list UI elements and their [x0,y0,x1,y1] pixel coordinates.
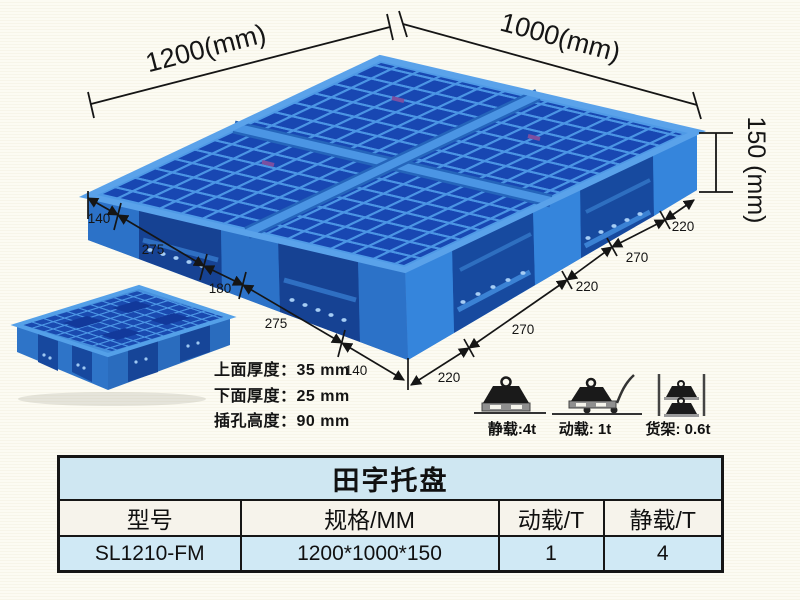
pallet-foot [358,259,408,360]
spec-table-header-row: 型号 规格/MM 动载/T 静载/T [59,500,723,536]
dim-segment-label: 140 [88,211,111,226]
dim-segment-label: 180 [209,281,232,296]
column-header-model: 型号 [59,500,241,536]
dimension-1200-label: 1200(mm) [142,18,269,78]
fork-hole-height-note: 插孔高度：90 mm [214,409,404,435]
spec-table-title-row: 田字托盘 [59,457,723,501]
dynamic-load-icon [552,375,642,414]
static-load-icon [474,378,546,414]
dim-segment-label: 270 [512,322,535,337]
dim-segment-label: 275 [142,242,165,257]
top-thickness-note: 上面厚度：35 mm [214,358,404,384]
static-load-value: 4 [604,536,723,572]
rack-load-caption: 货架: 0.6t [645,420,710,438]
spec-table: 田字托盘 型号 规格/MM 动载/T 静载/T SL1210-FM 1200*1… [57,455,724,573]
spec-table-title: 田字托盘 [59,457,723,501]
dim-segment-label: 220 [438,370,461,385]
dimension-150 [699,133,733,192]
dynamic-load-value: 1 [499,536,604,572]
load-rating-icons: 静载:4t 动载: 1t 货架: 0.6t [474,374,711,438]
thickness-notes: 上面厚度：35 mm 下面厚度：25 mm 插孔高度：90 mm [214,358,404,435]
static-load-caption: 静载:4t [488,420,536,438]
dynamic-load-caption: 动载: 1t [559,420,612,438]
size-value: 1200*1000*150 [241,536,499,572]
dimension-150-label: 150 (mm) [742,117,770,224]
rack-load-icon [659,374,704,417]
dim-segment-label: 270 [626,250,649,265]
dim-segment-label: 220 [576,279,599,294]
column-header-static-load: 静载/T [604,500,723,536]
dim-segment-label: 275 [265,316,288,331]
product-spec-sheet: 1200(mm) 1000(mm) 150 (mm) [0,0,800,600]
dimension-1000-label: 1000(mm) [497,7,624,68]
small-pallet-shadow [18,392,206,406]
dim-segment-label: 220 [672,219,695,234]
column-header-size: 规格/MM [241,500,499,536]
bottom-thickness-note: 下面厚度：25 mm [214,384,404,410]
model-value: SL1210-FM [59,536,241,572]
column-header-dynamic-load: 动载/T [499,500,604,536]
spec-table-data-row: SL1210-FM 1200*1000*150 1 4 [59,536,723,572]
small-pallet-photo [17,287,230,406]
